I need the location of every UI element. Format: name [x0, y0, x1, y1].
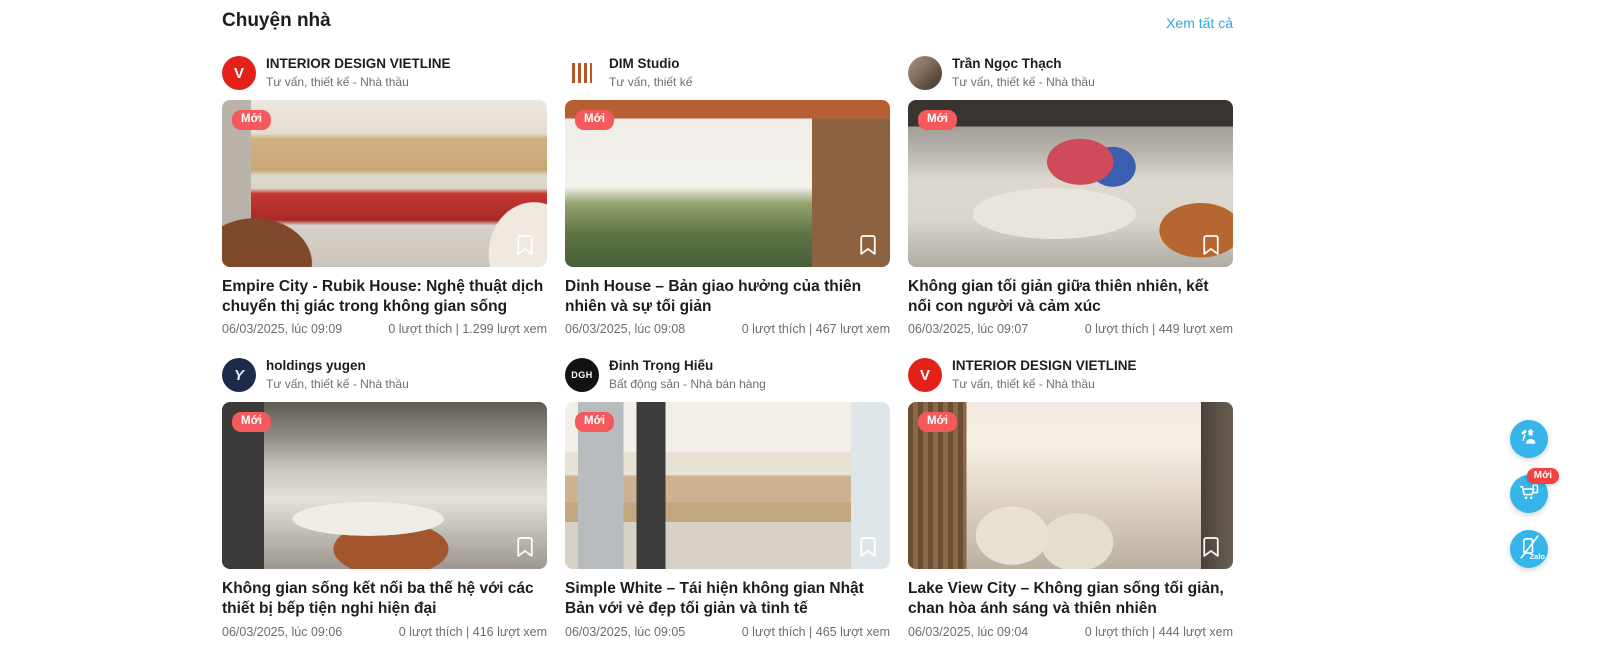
bookmark-icon[interactable]: [515, 535, 535, 559]
author-avatar: V: [222, 56, 256, 90]
author-category: Tư vấn, thiết kế: [609, 75, 692, 90]
article-card[interactable]: V INTERIOR DESIGN VIETLINE Tư vấn, thiết…: [222, 54, 547, 336]
article-thumbnail[interactable]: Mới: [222, 100, 547, 267]
author-name: INTERIOR DESIGN VIETLINE: [952, 358, 1137, 375]
author-row[interactable]: Trần Ngọc Thạch Tư vấn, thiết kế - Nhà t…: [908, 54, 1233, 92]
view-all-link[interactable]: Xem tất cả: [1166, 15, 1233, 31]
author-row[interactable]: V INTERIOR DESIGN VIETLINE Tư vấn, thiết…: [908, 356, 1233, 394]
bookmark-icon[interactable]: [858, 233, 878, 257]
bookmark-icon[interactable]: [1201, 535, 1221, 559]
article-card[interactable]: DGH Đinh Trọng Hiếu Bất động sản - Nhà b…: [565, 356, 890, 638]
house-stories-section: Chuyện nhà Xem tất cả V INTERIOR DESIGN …: [222, 10, 1233, 639]
author-category: Bất động sản - Nhà bán hàng: [609, 377, 766, 392]
avatar-monogram: DGH: [571, 370, 593, 380]
store-new-badge: Mới: [1527, 468, 1559, 484]
bookmark-icon[interactable]: [858, 535, 878, 559]
author-avatar: Y: [222, 358, 256, 392]
article-card[interactable]: Trần Ngọc Thạch Tư vấn, thiết kế - Nhà t…: [908, 54, 1233, 336]
article-grid: V INTERIOR DESIGN VIETLINE Tư vấn, thiết…: [222, 54, 1233, 639]
article-stats: 0 lượt thích | 449 lượt xem: [1085, 322, 1233, 336]
article-stats: 0 lượt thích | 465 lượt xem: [742, 625, 890, 639]
article-stats: 0 lượt thích | 1.299 lượt xem: [388, 322, 547, 336]
article-stats: 0 lượt thích | 467 lượt xem: [742, 322, 890, 336]
article-thumbnail[interactable]: Mới: [565, 100, 890, 267]
bookmark-icon[interactable]: [1201, 233, 1221, 257]
author-avatar: [565, 56, 599, 90]
author-name: Đinh Trọng Hiếu: [609, 358, 766, 375]
article-title[interactable]: Empire City - Rubik House: Nghệ thuật dị…: [222, 277, 547, 317]
worker-icon: [1518, 426, 1540, 453]
article-thumbnail[interactable]: Mới: [908, 402, 1233, 569]
author-category: Tư vấn, thiết kế - Nhà thầu: [952, 377, 1137, 392]
author-avatar: V: [908, 358, 942, 392]
article-date: 06/03/2025, lúc 09:09: [222, 322, 342, 336]
author-avatar: [908, 56, 942, 90]
article-thumbnail[interactable]: Mới: [908, 100, 1233, 267]
article-date: 06/03/2025, lúc 09:04: [908, 625, 1028, 639]
article-card[interactable]: V INTERIOR DESIGN VIETLINE Tư vấn, thiết…: [908, 356, 1233, 638]
article-title[interactable]: Lake View City – Không gian sống tối giả…: [908, 579, 1233, 619]
store-button[interactable]: Mới: [1510, 475, 1548, 513]
author-name: INTERIOR DESIGN VIETLINE: [266, 56, 451, 73]
article-thumbnail[interactable]: Mới: [565, 402, 890, 569]
article-date: 06/03/2025, lúc 09:07: [908, 322, 1028, 336]
author-category: Tư vấn, thiết kế - Nhà thầu: [952, 75, 1095, 90]
author-row[interactable]: V INTERIOR DESIGN VIETLINE Tư vấn, thiết…: [222, 54, 547, 92]
article-card[interactable]: Y holdings yugen Tư vấn, thiết kế - Nhà …: [222, 356, 547, 638]
author-avatar: DGH: [565, 358, 599, 392]
author-category: Tư vấn, thiết kế - Nhà thầu: [266, 377, 409, 392]
new-badge: Mới: [232, 110, 271, 130]
cart-icon: [1518, 481, 1540, 508]
new-badge: Mới: [232, 412, 271, 432]
zalo-label: Zalo: [1530, 552, 1545, 561]
avatar-monogram: V: [234, 65, 244, 82]
article-date: 06/03/2025, lúc 09:05: [565, 625, 685, 639]
article-title[interactable]: Không gian tối giản giữa thiên nhiên, kế…: [908, 277, 1233, 317]
section-title: Chuyện nhà: [222, 10, 1233, 32]
article-title[interactable]: Simple White – Tái hiện không gian Nhật …: [565, 579, 890, 619]
article-stats: 0 lượt thích | 416 lượt xem: [399, 625, 547, 639]
floating-action-buttons: Mới Zalo: [1510, 420, 1558, 585]
dim-studio-logo: [572, 63, 592, 83]
article-thumbnail[interactable]: Mới: [222, 402, 547, 569]
new-badge: Mới: [575, 110, 614, 130]
avatar-monogram: Y: [234, 367, 244, 384]
author-name: DIM Studio: [609, 56, 692, 73]
author-category: Tư vấn, thiết kế - Nhà thầu: [266, 75, 451, 90]
zalo-button[interactable]: Zalo: [1510, 530, 1548, 568]
avatar-monogram: V: [920, 367, 930, 384]
new-badge: Mới: [918, 110, 957, 130]
contractor-button[interactable]: [1510, 420, 1548, 458]
author-name: Trần Ngọc Thạch: [952, 56, 1095, 73]
author-name: holdings yugen: [266, 358, 409, 375]
article-card[interactable]: DIM Studio Tư vấn, thiết kế Mới Dinh Hou…: [565, 54, 890, 336]
author-row[interactable]: DGH Đinh Trọng Hiếu Bất động sản - Nhà b…: [565, 356, 890, 394]
article-stats: 0 lượt thích | 444 lượt xem: [1085, 625, 1233, 639]
author-row[interactable]: Y holdings yugen Tư vấn, thiết kế - Nhà …: [222, 356, 547, 394]
article-title[interactable]: Không gian sống kết nối ba thế hệ với cá…: [222, 579, 547, 619]
article-date: 06/03/2025, lúc 09:06: [222, 625, 342, 639]
article-date: 06/03/2025, lúc 09:08: [565, 322, 685, 336]
new-badge: Mới: [918, 412, 957, 432]
article-title[interactable]: Dinh House – Bản giao hưởng của thiên nh…: [565, 277, 890, 317]
new-badge: Mới: [575, 412, 614, 432]
bookmark-icon[interactable]: [515, 233, 535, 257]
author-row[interactable]: DIM Studio Tư vấn, thiết kế: [565, 54, 890, 92]
